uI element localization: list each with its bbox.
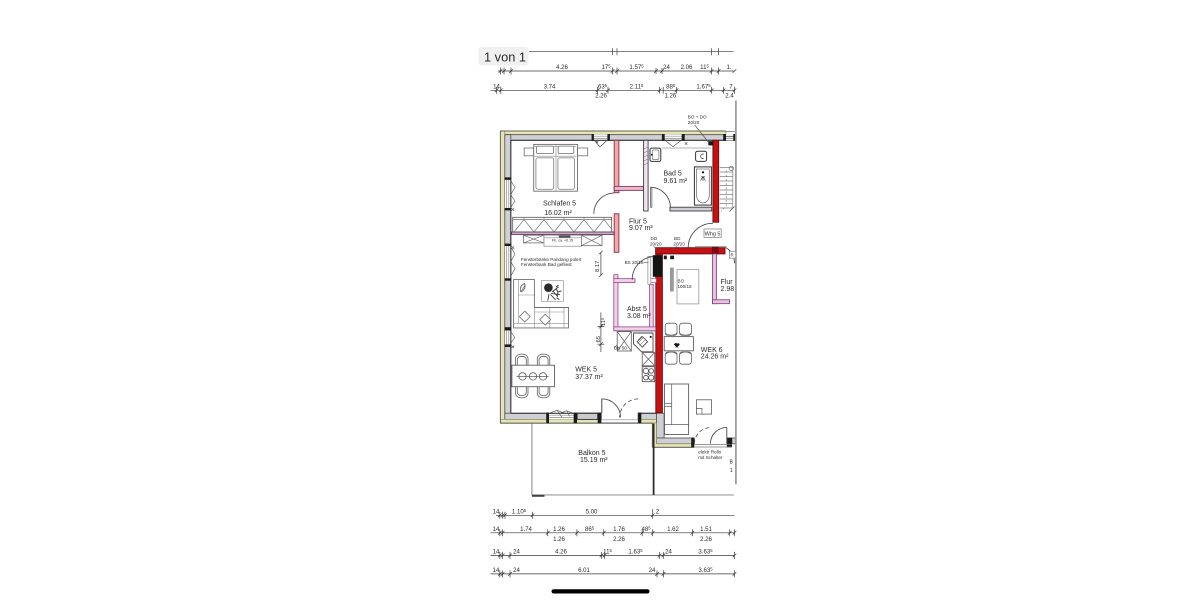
svg-text:14: 14: [493, 526, 500, 533]
svg-text:1.26: 1.26: [664, 93, 676, 100]
svg-text:24: 24: [663, 64, 670, 71]
svg-text:24: 24: [665, 549, 672, 556]
svg-text:24: 24: [513, 567, 520, 574]
svg-text:5.00: 5.00: [586, 509, 598, 516]
svg-text:1 von 1: 1 von 1: [484, 50, 526, 65]
svg-text:Fensterbank Bad gefliest: Fensterbank Bad gefliest: [521, 262, 573, 267]
svg-text:Bad 5: Bad 5: [664, 171, 682, 178]
svg-text:15.19 m²: 15.19 m²: [580, 457, 608, 464]
svg-text:20/20: 20/20: [650, 241, 662, 246]
svg-text:1.51: 1.51: [700, 526, 712, 533]
svg-text:7: 7: [729, 83, 733, 90]
svg-text:1.62: 1.62: [667, 526, 679, 533]
svg-text:8.17: 8.17: [595, 261, 601, 272]
svg-text:16.02 m²: 16.02 m²: [544, 210, 572, 217]
svg-text:2.98: 2.98: [721, 286, 735, 293]
svg-text:1.74: 1.74: [520, 526, 532, 533]
svg-text:BO + DO: BO + DO: [688, 115, 707, 120]
svg-text:Fb. ca. +0.15: Fb. ca. +0.15: [552, 239, 573, 243]
svg-text:9.61 m²: 9.61 m²: [664, 178, 688, 185]
svg-text:20/20: 20/20: [688, 120, 700, 125]
svg-text:BO: BO: [678, 278, 685, 283]
svg-text:14: 14: [493, 549, 500, 556]
svg-text:24.26 m²: 24.26 m²: [701, 353, 729, 360]
svg-text:1.: 1.: [726, 64, 731, 71]
svg-text:4.26: 4.26: [555, 549, 567, 556]
svg-text:2.26: 2.26: [613, 536, 625, 543]
svg-text:3.08 m²: 3.08 m²: [627, 313, 651, 320]
svg-text:2.06: 2.06: [681, 64, 693, 71]
svg-text:BD: BD: [674, 236, 681, 241]
svg-text:4.26: 4.26: [556, 64, 568, 71]
svg-text:2.26: 2.26: [595, 93, 607, 100]
svg-text:9.07 m²: 9.07 m²: [629, 225, 653, 232]
svg-text:14: 14: [493, 509, 500, 516]
svg-text:24: 24: [513, 549, 520, 556]
svg-text:DD: DD: [651, 236, 658, 241]
svg-text:100/15: 100/15: [678, 284, 692, 289]
svg-text:1.26: 1.26: [553, 526, 565, 533]
svg-text:1.26: 1.26: [553, 536, 565, 543]
svg-text:Schlafen 5: Schlafen 5: [543, 200, 576, 207]
svg-text:elektr Rollo: elektr Rollo: [698, 449, 721, 454]
svg-text:1: 1: [730, 468, 733, 474]
svg-text:6.01: 6.01: [578, 567, 590, 574]
svg-text:Flur: Flur: [721, 279, 734, 286]
svg-text:2.4: 2.4: [725, 93, 734, 100]
svg-text:3.74: 3.74: [544, 83, 556, 90]
svg-text:BS 20/15: BS 20/15: [625, 260, 644, 265]
svg-text:2.26: 2.26: [700, 536, 712, 543]
svg-text:WEK 5: WEK 5: [575, 367, 597, 374]
svg-text:1.76: 1.76: [613, 526, 625, 533]
svg-text:mit Schalter: mit Schalter: [698, 455, 723, 460]
svg-text:DN 50: DN 50: [614, 345, 627, 350]
svg-text:14: 14: [493, 567, 500, 574]
svg-text:14: 14: [493, 83, 500, 90]
svg-text:24: 24: [649, 567, 656, 574]
svg-text:65: 65: [596, 336, 602, 342]
svg-text:37.37 m²: 37.37 m²: [575, 374, 603, 381]
svg-text:20/20: 20/20: [673, 241, 685, 246]
svg-text:R: R: [731, 253, 734, 258]
svg-text:Whg 5: Whg 5: [705, 231, 721, 237]
